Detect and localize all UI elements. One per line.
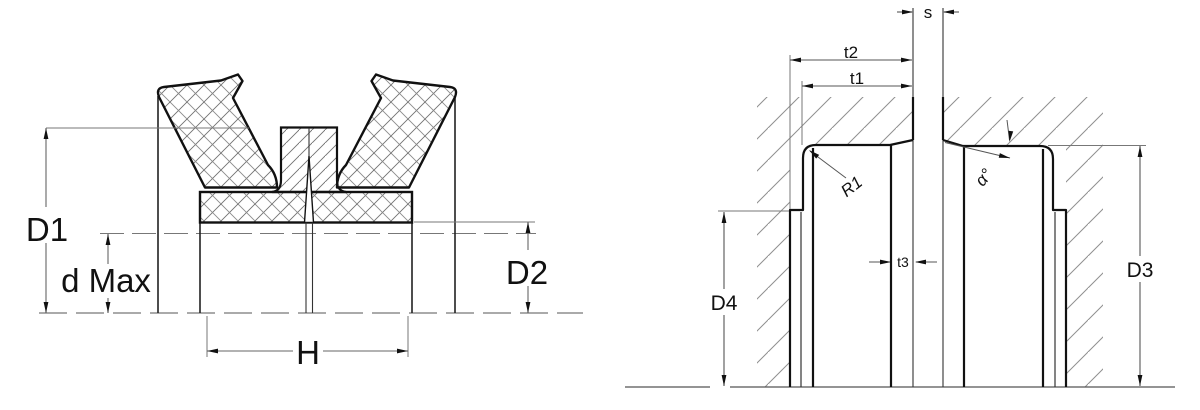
dim-label-r1: R1	[837, 172, 866, 200]
dimension-d2: D2	[414, 222, 554, 313]
dimension-h: H	[207, 316, 408, 371]
dimension-t1: t1	[802, 69, 912, 88]
dim-label-d3: D3	[1127, 259, 1154, 282]
dim-label-t1: t1	[850, 69, 864, 88]
dim-label-h: H	[296, 334, 320, 371]
dimension-t2: t2	[790, 43, 912, 62]
dim-label-d2: D2	[506, 254, 548, 291]
dim-label-d4: D4	[711, 292, 738, 315]
dim-label-s: s	[924, 3, 933, 22]
dimension-t3: t3	[869, 254, 937, 270]
dimension-d3: D3	[1121, 146, 1159, 386]
rod-lines	[913, 8, 943, 387]
left-lip	[158, 75, 277, 188]
callout-r1: R1	[808, 148, 867, 201]
housing-right-block	[943, 97, 1103, 387]
technical-drawing-page: D1 d Max D2 H	[0, 0, 1200, 410]
technical-drawing-canvas: D1 d Max D2 H	[0, 0, 1200, 410]
housing-left-block	[757, 97, 913, 387]
dimension-d-max: d Max	[57, 234, 156, 313]
dimension-d4: D4	[705, 212, 743, 386]
right-lip	[337, 75, 456, 188]
dimension-s: s	[897, 3, 959, 22]
dim-label-t2: t2	[844, 43, 858, 62]
bore-step-lines	[801, 212, 1055, 387]
dim-label-d1: D1	[26, 211, 68, 248]
dim-label-alpha: α°	[971, 165, 996, 190]
dim-label-t3: t3	[897, 254, 909, 270]
left-figure-seal-cross-section: D1 d Max D2 H	[23, 75, 583, 372]
right-figure-groove-cross-section: s t2 t1 t3 R1	[625, 3, 1175, 387]
split-lines-below	[306, 223, 313, 314]
dim-label-d-max: d Max	[61, 262, 151, 299]
